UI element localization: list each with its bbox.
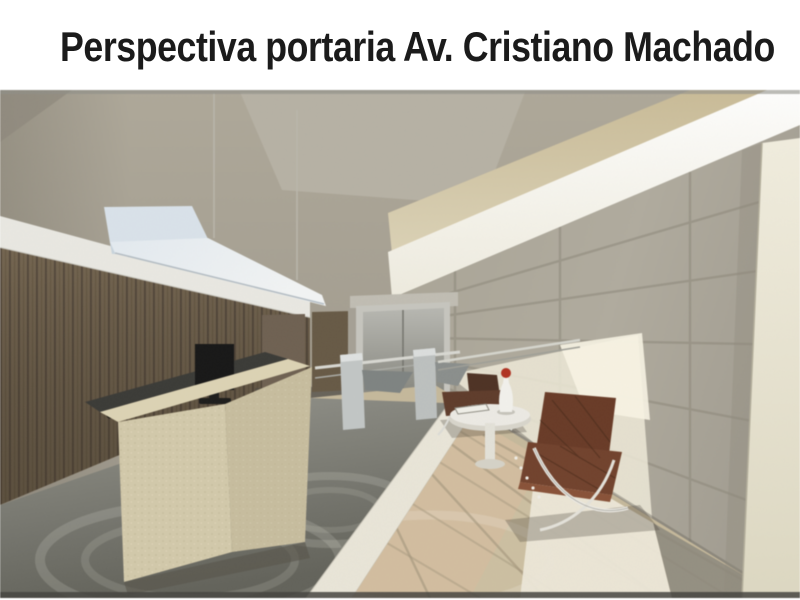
architectural-render: [0, 90, 800, 598]
presentation-slide: Perspectiva portaria Av. Cristiano Macha…: [0, 0, 800, 600]
slide-title: Perspectiva portaria Av. Cristiano Macha…: [60, 24, 740, 70]
